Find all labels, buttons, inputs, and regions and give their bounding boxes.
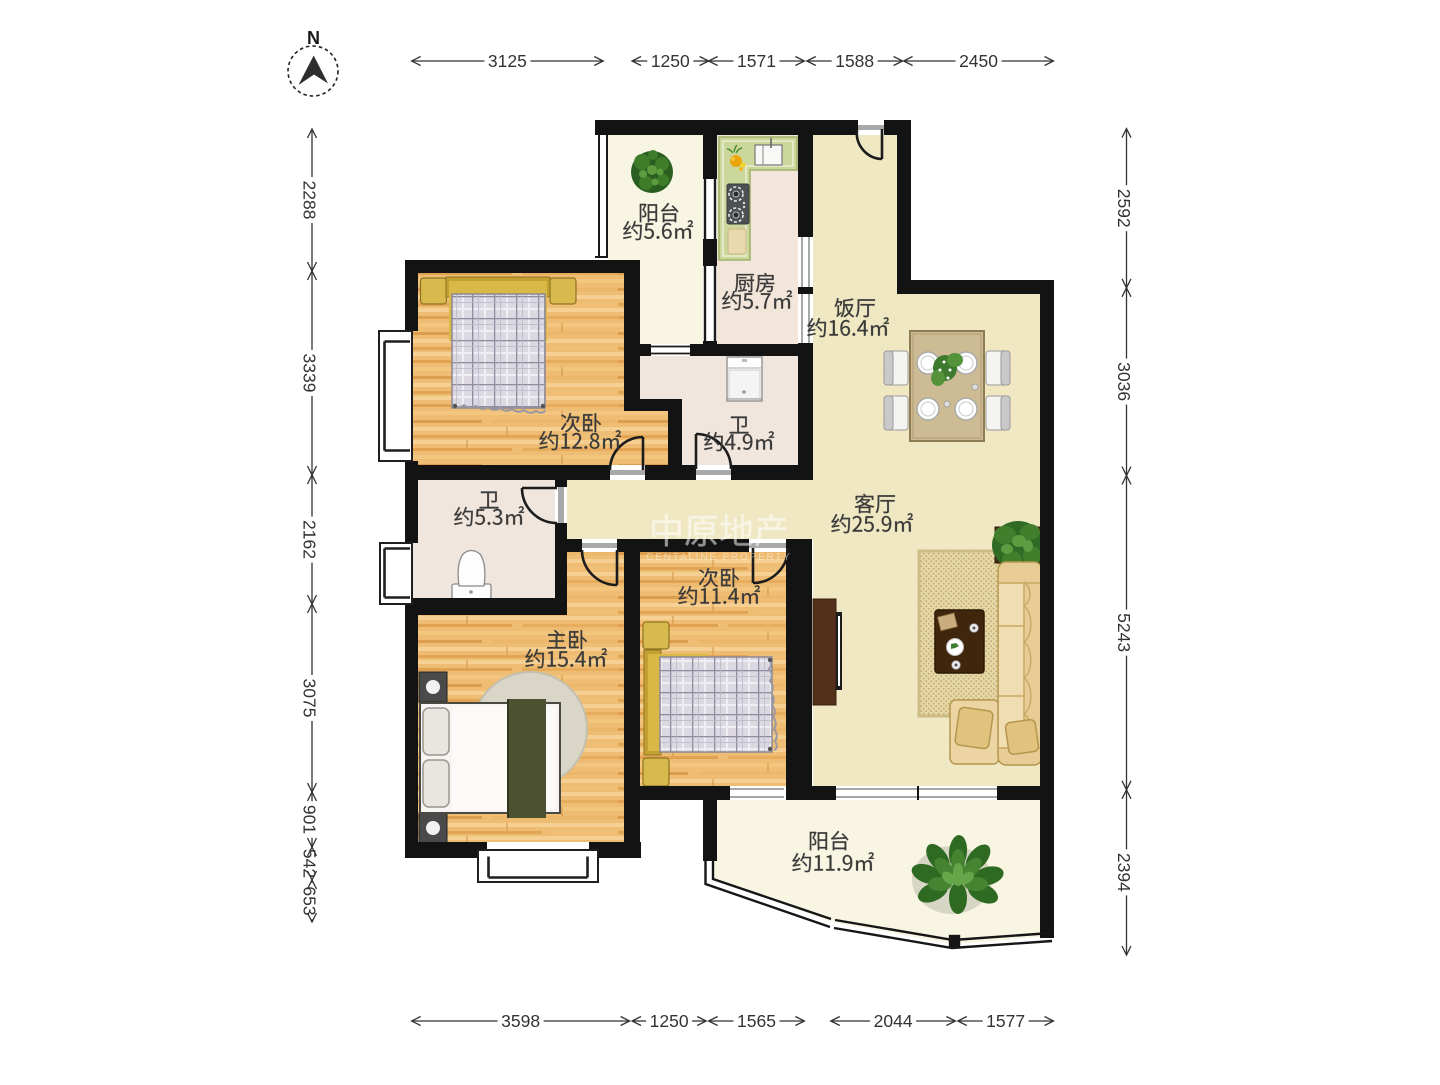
svg-text:3075: 3075 — [299, 679, 319, 718]
svg-text:2394: 2394 — [1114, 853, 1134, 892]
svg-text:3598: 3598 — [501, 1011, 540, 1031]
svg-text:CENTALINE PROPERTY: CENTALINE PROPERTY — [646, 552, 791, 563]
svg-text:2288: 2288 — [299, 181, 319, 220]
svg-text:901: 901 — [299, 805, 319, 834]
svg-text:3339: 3339 — [299, 354, 319, 393]
svg-text:1588: 1588 — [835, 51, 874, 71]
svg-text:542: 542 — [299, 849, 319, 878]
svg-text:1565: 1565 — [737, 1011, 776, 1031]
svg-text:3036: 3036 — [1114, 362, 1134, 401]
svg-text:1577: 1577 — [986, 1011, 1025, 1031]
svg-text:2592: 2592 — [1114, 189, 1134, 228]
svg-text:2044: 2044 — [874, 1011, 913, 1031]
svg-text:1250: 1250 — [650, 1011, 689, 1031]
svg-text:2450: 2450 — [959, 51, 998, 71]
svg-text:N: N — [307, 28, 320, 48]
svg-text:1571: 1571 — [737, 51, 776, 71]
svg-text:3125: 3125 — [488, 51, 527, 71]
svg-text:1250: 1250 — [651, 51, 690, 71]
svg-text:2162: 2162 — [299, 520, 319, 559]
svg-text:5243: 5243 — [1114, 613, 1134, 652]
svg-text:653: 653 — [299, 886, 319, 915]
